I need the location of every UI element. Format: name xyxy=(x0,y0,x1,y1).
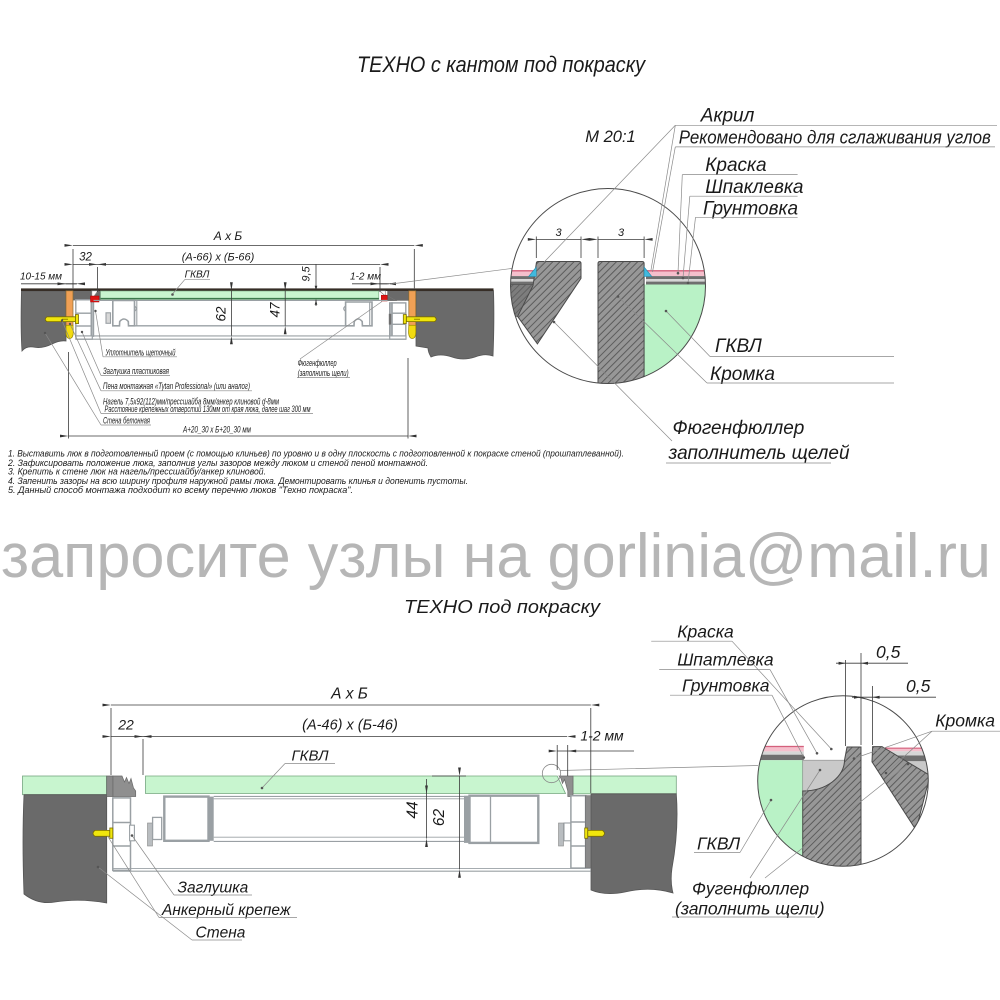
svg-text:ГКВЛ: ГКВЛ xyxy=(185,270,210,281)
svg-text:А+20_30 х Б+20_30 мм: А+20_30 х Б+20_30 мм xyxy=(182,424,251,435)
svg-text:Кромка: Кромка xyxy=(710,364,775,385)
svg-text:1-2 мм: 1-2 мм xyxy=(350,272,381,283)
svg-text:10-15 мм: 10-15 мм xyxy=(20,272,62,283)
svg-text:Фюгенфюллер: Фюгенфюллер xyxy=(673,418,805,439)
svg-text:Пена монтажная «Tytan Professi: Пена монтажная «Tytan Professional» (или… xyxy=(103,381,250,391)
svg-text:3: 3 xyxy=(618,227,625,239)
svg-text:ГКВЛ: ГКВЛ xyxy=(715,336,763,357)
svg-text:ТЕХНО с кантом под покраску: ТЕХНО с кантом под покраску xyxy=(357,52,647,77)
svg-text:заполнитель щелей: заполнитель щелей xyxy=(668,443,850,464)
svg-text:А х Б: А х Б xyxy=(213,229,243,243)
svg-text:(А-46) х (Б-46): (А-46) х (Б-46) xyxy=(302,718,398,734)
svg-text:47: 47 xyxy=(268,302,283,318)
svg-text:62: 62 xyxy=(214,306,229,322)
svg-text:0,5: 0,5 xyxy=(906,676,931,696)
svg-text:3: 3 xyxy=(555,227,562,239)
svg-text:Уплотнитель щеточный: Уплотнитель щеточный xyxy=(105,348,176,358)
svg-text:Грунтовка: Грунтовка xyxy=(682,676,770,696)
svg-text:Краска: Краска xyxy=(705,155,766,176)
svg-text:Фугенфюллер: Фугенфюллер xyxy=(692,879,809,899)
svg-text:Кромка: Кромка xyxy=(935,711,995,731)
svg-text:М 20:1: М 20:1 xyxy=(585,128,635,146)
svg-text:62: 62 xyxy=(431,809,448,827)
svg-text:Шпаклевка: Шпаклевка xyxy=(705,177,803,198)
svg-text:Акрил: Акрил xyxy=(700,106,755,127)
svg-text:Фюгенфюллер: Фюгенфюллер xyxy=(298,358,337,368)
svg-text:Грунтовка: Грунтовка xyxy=(703,198,798,219)
svg-text:А х Б: А х Б xyxy=(330,686,368,703)
svg-text:запросите узлы на gorlinia@mai: запросите узлы на gorlinia@mail.ru xyxy=(1,522,991,591)
svg-text:Заглушка: Заглушка xyxy=(178,880,249,897)
svg-text:32: 32 xyxy=(79,252,92,264)
svg-text:0,5: 0,5 xyxy=(876,642,901,662)
svg-text:Шпатлевка: Шпатлевка xyxy=(677,650,774,670)
svg-text:Расстояние крепежных отверстий: Расстояние крепежных отверстий 130мм от … xyxy=(105,404,311,414)
svg-text:ГКВЛ: ГКВЛ xyxy=(292,748,330,765)
svg-text:Стена: Стена xyxy=(196,925,246,942)
svg-text:ТЕХНО под покраску: ТЕХНО под покраску xyxy=(404,597,601,617)
svg-text:Заглушка пластиковая: Заглушка пластиковая xyxy=(103,366,169,376)
svg-text:Краска: Краска xyxy=(677,622,734,642)
svg-text:9,5: 9,5 xyxy=(301,265,313,281)
svg-text:Стена бетонная: Стена бетонная xyxy=(103,416,150,426)
svg-text:(заполнить щели): (заполнить щели) xyxy=(298,368,349,378)
svg-text:ГКВЛ: ГКВЛ xyxy=(697,834,741,854)
svg-text:22: 22 xyxy=(117,717,134,733)
svg-text:44: 44 xyxy=(405,801,422,819)
svg-text:Рекомендовано для сглаживания: Рекомендовано для сглаживания углов xyxy=(679,127,991,148)
svg-text:(заполнить щели): (заполнить щели) xyxy=(675,899,825,919)
svg-text:(А-66) х (Б-66): (А-66) х (Б-66) xyxy=(182,252,255,264)
svg-text:1-2 мм: 1-2 мм xyxy=(580,728,624,744)
svg-text:3. Крепить к стене люк на наге: 3. Крепить к стене люк на нагель/прессша… xyxy=(8,466,266,476)
svg-text:Анкерный крепеж: Анкерный крепеж xyxy=(161,902,292,919)
svg-text:5. Данный способ монтажа подхо: 5. Данный способ монтажа подходит ко все… xyxy=(8,485,353,495)
